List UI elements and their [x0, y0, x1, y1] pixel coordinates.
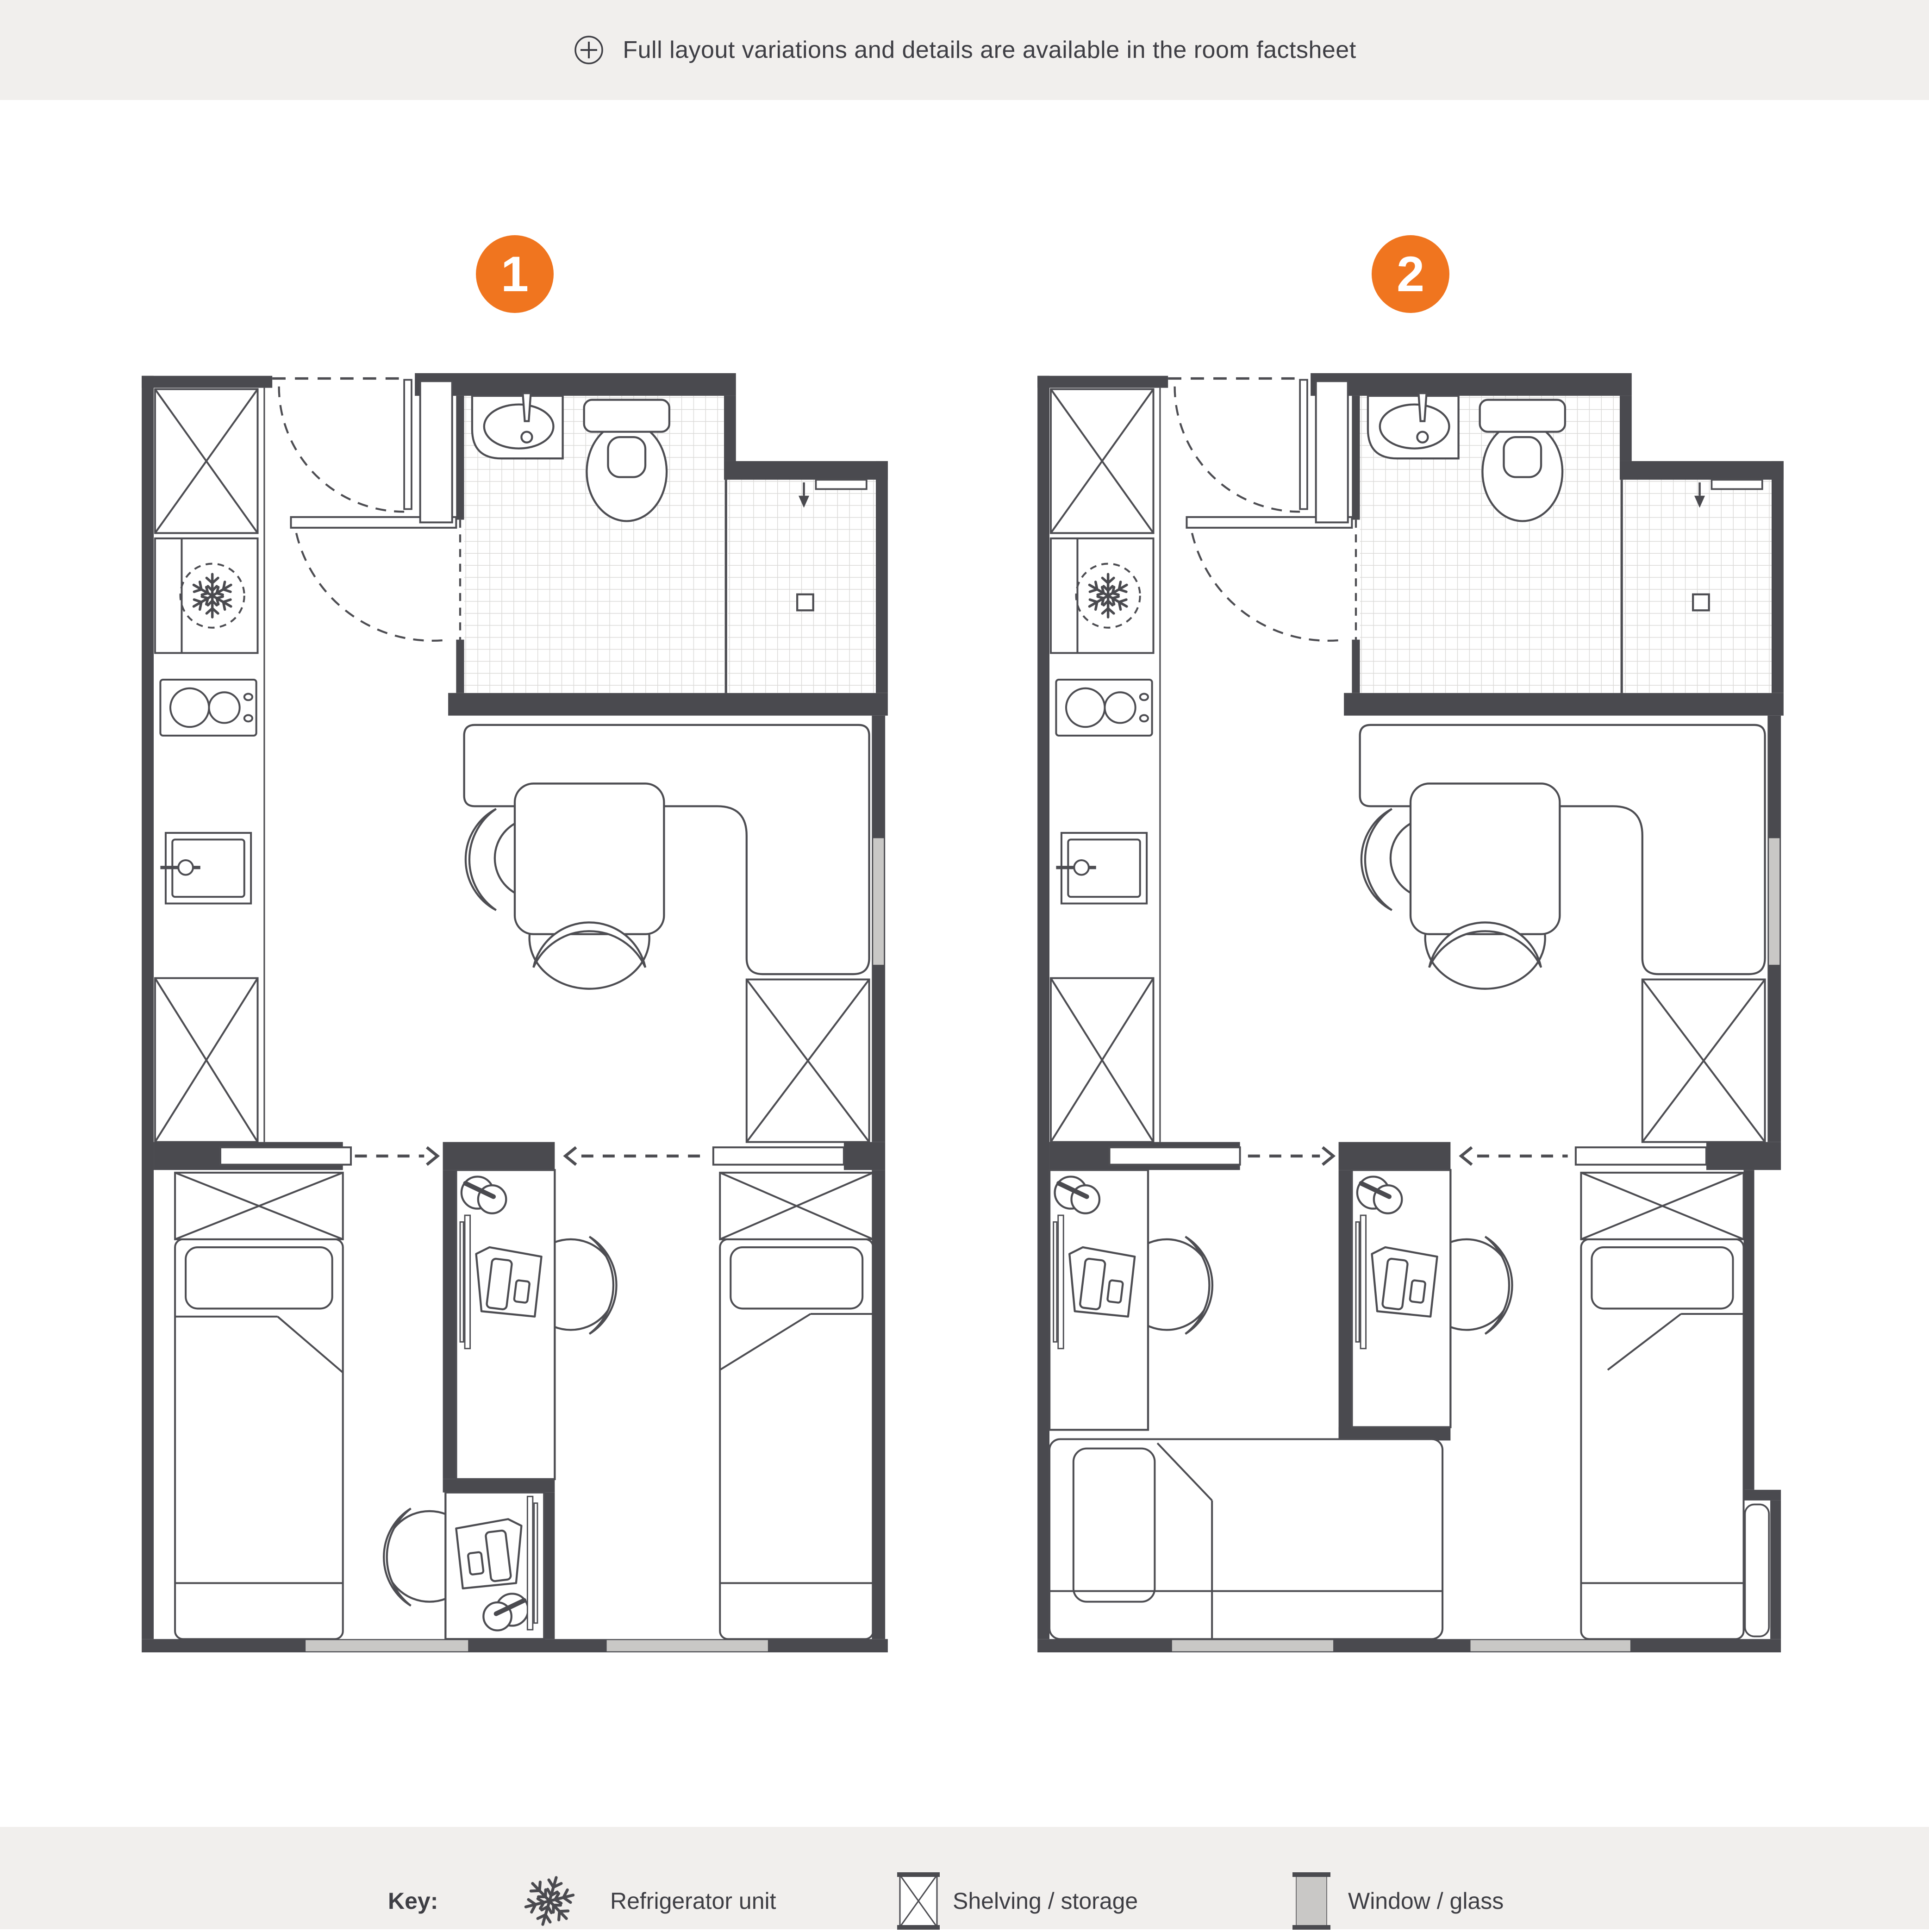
laptop-icon [476, 1247, 542, 1317]
bottom-wall [1037, 1639, 1781, 1652]
plan-1-badge: 1 [476, 235, 554, 313]
header-band: Full layout variations and details are a… [0, 0, 1929, 100]
legend-label-refrigerator: Refrigerator unit [610, 1888, 776, 1914]
plan-1-number: 1 [501, 249, 529, 299]
page: { "header": { "icon": "plus-circle-icon"… [0, 0, 1929, 1929]
bed-right [720, 1173, 873, 1639]
crossed-box-icon [896, 1872, 941, 1932]
window [1172, 1640, 1333, 1651]
desk [456, 1170, 555, 1479]
desk-nooks [384, 1170, 616, 1639]
laptop-icon [1069, 1247, 1135, 1317]
window [607, 1640, 768, 1651]
plus-circle-icon [573, 34, 605, 66]
legend-label-window: Window / glass [1348, 1888, 1504, 1914]
sliding-door-panel [713, 1147, 844, 1164]
bed-horizontal [1049, 1439, 1442, 1639]
floor-plan-2 [1037, 373, 1784, 1652]
bed-alcove [1745, 1505, 1769, 1637]
bedroom-right-wall [872, 1170, 885, 1639]
window [306, 1640, 468, 1651]
bed-left [175, 1173, 343, 1639]
slide-arrow-left [565, 1147, 706, 1164]
sliding-door-panel [1110, 1147, 1240, 1164]
snowflake-icon [522, 1872, 577, 1932]
slide-arrow-left [1461, 1147, 1567, 1164]
monitor [534, 1503, 537, 1623]
slide-arrow-right [1248, 1147, 1333, 1164]
monitor [465, 1215, 470, 1349]
laptop-icon [456, 1519, 521, 1588]
monitor [1054, 1222, 1057, 1342]
left-desk [1049, 1170, 1212, 1430]
monitor [1356, 1222, 1359, 1342]
glass-swatch-icon [1292, 1872, 1331, 1932]
plan-2-number: 2 [1397, 249, 1424, 299]
plan-2-badge: 2 [1372, 235, 1449, 313]
stepped-right-wall [1744, 1170, 1781, 1639]
laptop-icon [1372, 1247, 1437, 1317]
centre-desk [1339, 1170, 1512, 1440]
slide-arrow-right [355, 1147, 437, 1164]
header-note: Full layout variations and details are a… [623, 36, 1356, 64]
sliding-door-panel [220, 1147, 351, 1164]
legend-band: Key: Refrigerator unit Shelving / storag… [0, 1827, 1929, 1929]
legend-title: Key: [388, 1888, 438, 1914]
bedroom-section-2 [1037, 1142, 1781, 1652]
monitor [1361, 1215, 1366, 1349]
legend-label-shelving: Shelving / storage [953, 1888, 1138, 1914]
monitor [1058, 1215, 1064, 1349]
monitor [527, 1496, 533, 1630]
sliding-door-panel [1576, 1147, 1706, 1164]
sliding-wall [1049, 1142, 1781, 1170]
floor-plan-1 [142, 373, 888, 1652]
monitor [460, 1222, 463, 1342]
bottom-wall [142, 1639, 888, 1652]
bed-right [1581, 1173, 1743, 1639]
sliding-wall [154, 1142, 885, 1170]
bedroom-section-1 [142, 1142, 888, 1652]
window [1471, 1640, 1630, 1651]
